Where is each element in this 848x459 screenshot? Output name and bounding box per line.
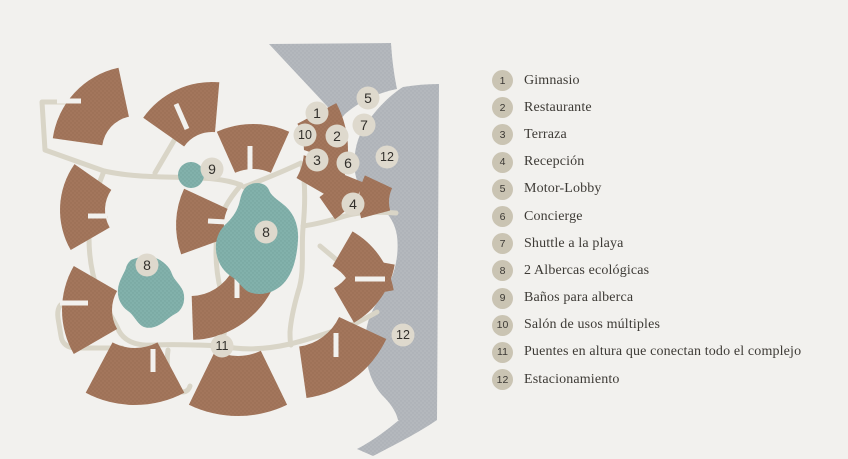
legend-item-label: Recepción bbox=[524, 154, 584, 170]
legend-item-9: 9Baños para alberca bbox=[492, 285, 801, 312]
legend-number-badge: 4 bbox=[492, 152, 513, 173]
map-marker-1: 1 bbox=[306, 102, 329, 125]
map-marker-6: 6 bbox=[337, 152, 360, 175]
legend-item-8: 82 Albercas ecológicas bbox=[492, 257, 801, 284]
legend-item-label: Terraza bbox=[524, 127, 567, 143]
legend-item-7: 7Shuttle a la playa bbox=[492, 230, 801, 257]
legend-number-badge: 11 bbox=[492, 342, 513, 363]
road-tail bbox=[357, 420, 437, 456]
marker-number: 11 bbox=[216, 339, 229, 353]
map-marker-12: 12 bbox=[392, 324, 415, 347]
marker-number: 7 bbox=[360, 117, 368, 133]
marker-number: 4 bbox=[349, 196, 357, 212]
map-marker-4: 4 bbox=[342, 193, 365, 216]
building-shape bbox=[53, 68, 129, 146]
site-plan-page: 110236571249881112 1Gimnasio2Restaurante… bbox=[0, 0, 848, 459]
legend-item-3: 3Terraza bbox=[492, 121, 801, 148]
map-marker-12: 12 bbox=[376, 146, 399, 169]
legend-item-label: Salón de usos múltiples bbox=[524, 317, 660, 333]
legend-item-11: 11Puentes en altura que conectan todo el… bbox=[492, 339, 801, 366]
legend-item-label: Motor-Lobby bbox=[524, 181, 602, 197]
legend-item-label: Puentes en altura que conectan todo el c… bbox=[524, 344, 801, 360]
legend-item-10: 10Salón de usos múltiples bbox=[492, 312, 801, 339]
legend-item-5: 5Motor-Lobby bbox=[492, 176, 801, 203]
legend-item-2: 2Restaurante bbox=[492, 94, 801, 121]
legend-number-badge: 12 bbox=[492, 369, 513, 390]
legend-number-badge: 5 bbox=[492, 179, 513, 200]
map-marker-11: 11 bbox=[211, 335, 234, 358]
legend-number-badge: 6 bbox=[492, 206, 513, 227]
marker-number: 8 bbox=[262, 224, 270, 240]
marker-number: 3 bbox=[313, 152, 321, 168]
building-shape bbox=[62, 266, 117, 354]
marker-number: 1 bbox=[313, 105, 321, 121]
marker-number: 12 bbox=[380, 150, 394, 164]
legend-number-badge: 9 bbox=[492, 288, 513, 309]
map-marker-7: 7 bbox=[353, 114, 376, 137]
legend-number-badge: 8 bbox=[492, 260, 513, 281]
map-marker-3: 3 bbox=[306, 149, 329, 172]
legend-number-badge: 7 bbox=[492, 233, 513, 254]
marker-number: 12 bbox=[396, 328, 410, 342]
marker-number: 9 bbox=[208, 161, 216, 177]
marker-number: 2 bbox=[333, 128, 341, 144]
marker-number: 5 bbox=[364, 90, 372, 106]
legend-item-6: 6Concierge bbox=[492, 203, 801, 230]
legend-number-badge: 3 bbox=[492, 124, 513, 145]
pool-bath-circle bbox=[178, 162, 204, 188]
legend-item-1: 1Gimnasio bbox=[492, 67, 801, 94]
legend: 1Gimnasio2Restaurante3Terraza4Recepción5… bbox=[492, 67, 801, 393]
legend-item-label: 2 Albercas ecológicas bbox=[524, 263, 649, 279]
building-shape bbox=[189, 351, 287, 416]
building-shape bbox=[217, 124, 289, 173]
legend-item-label: Gimnasio bbox=[524, 73, 580, 89]
legend-item-4: 4Recepción bbox=[492, 149, 801, 176]
legend-item-label: Estacionamiento bbox=[524, 372, 620, 388]
map-marker-2: 2 bbox=[326, 125, 349, 148]
marker-number: 10 bbox=[298, 128, 312, 142]
legend-item-label: Shuttle a la playa bbox=[524, 236, 624, 252]
map-marker-5: 5 bbox=[357, 87, 380, 110]
map-marker-8: 8 bbox=[136, 254, 159, 277]
map-marker-8: 8 bbox=[255, 221, 278, 244]
marker-number: 8 bbox=[143, 257, 151, 273]
legend-item-label: Restaurante bbox=[524, 100, 592, 116]
map-marker-10: 10 bbox=[294, 124, 317, 147]
legend-number-badge: 1 bbox=[492, 70, 513, 91]
legend-item-label: Baños para alberca bbox=[524, 290, 633, 306]
marker-number: 6 bbox=[344, 155, 352, 171]
site-plan-map: 110236571249881112 bbox=[0, 0, 460, 459]
map-marker-9: 9 bbox=[201, 158, 224, 181]
legend-number-badge: 10 bbox=[492, 315, 513, 336]
legend-item-12: 12Estacionamiento bbox=[492, 366, 801, 393]
legend-number-badge: 2 bbox=[492, 97, 513, 118]
legend-item-label: Concierge bbox=[524, 209, 583, 225]
